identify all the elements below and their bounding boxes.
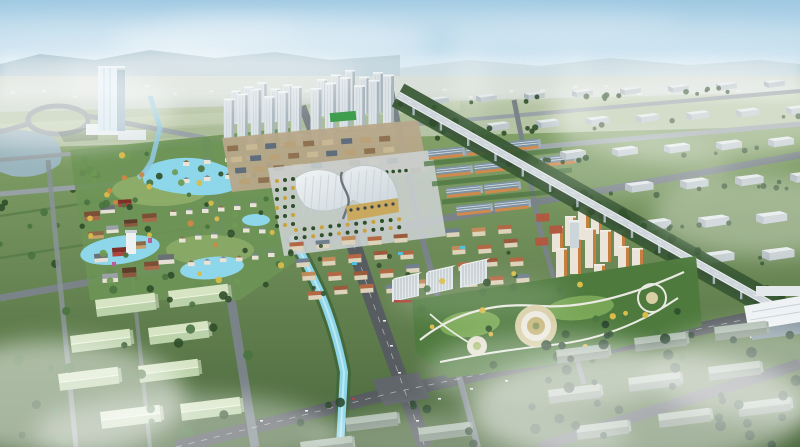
sawtooth-factory <box>756 286 800 296</box>
masterplan-scene <box>0 0 800 447</box>
garden-pond-4 <box>242 214 270 226</box>
park-plaza-center <box>533 323 540 330</box>
park-circle-garden-center <box>646 292 658 304</box>
masterplan-rendering <box>0 0 800 447</box>
